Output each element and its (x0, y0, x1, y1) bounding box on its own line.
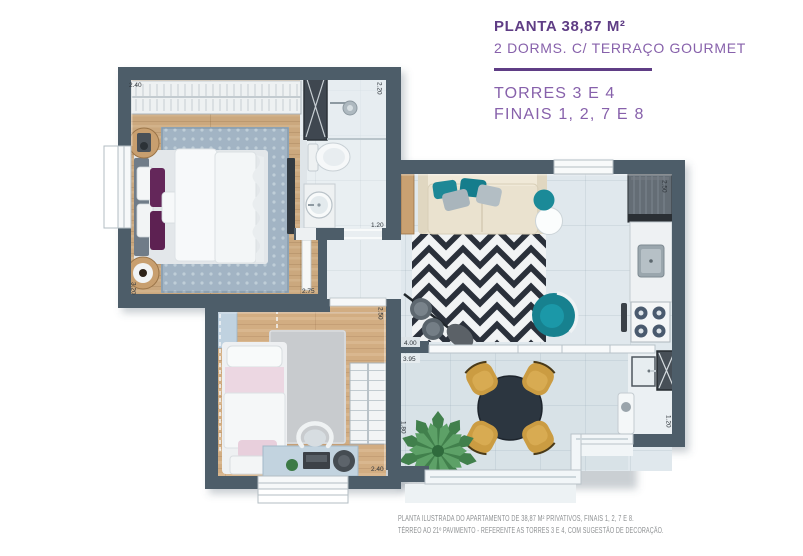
svg-text:2.75: 2.75 (302, 288, 315, 295)
svg-text:2.50: 2.50 (377, 307, 384, 320)
svg-text:1.20: 1.20 (665, 415, 672, 428)
svg-text:2.50: 2.50 (661, 180, 668, 193)
svg-text:1.20: 1.20 (371, 222, 384, 229)
svg-text:2.40: 2.40 (371, 466, 384, 473)
svg-text:1.80: 1.80 (400, 421, 407, 434)
svg-text:3.20: 3.20 (130, 282, 137, 295)
svg-text:2.40: 2.40 (129, 82, 142, 89)
svg-text:3.95: 3.95 (403, 356, 416, 363)
svg-text:4.00: 4.00 (404, 340, 417, 347)
svg-text:2.20: 2.20 (376, 82, 383, 95)
